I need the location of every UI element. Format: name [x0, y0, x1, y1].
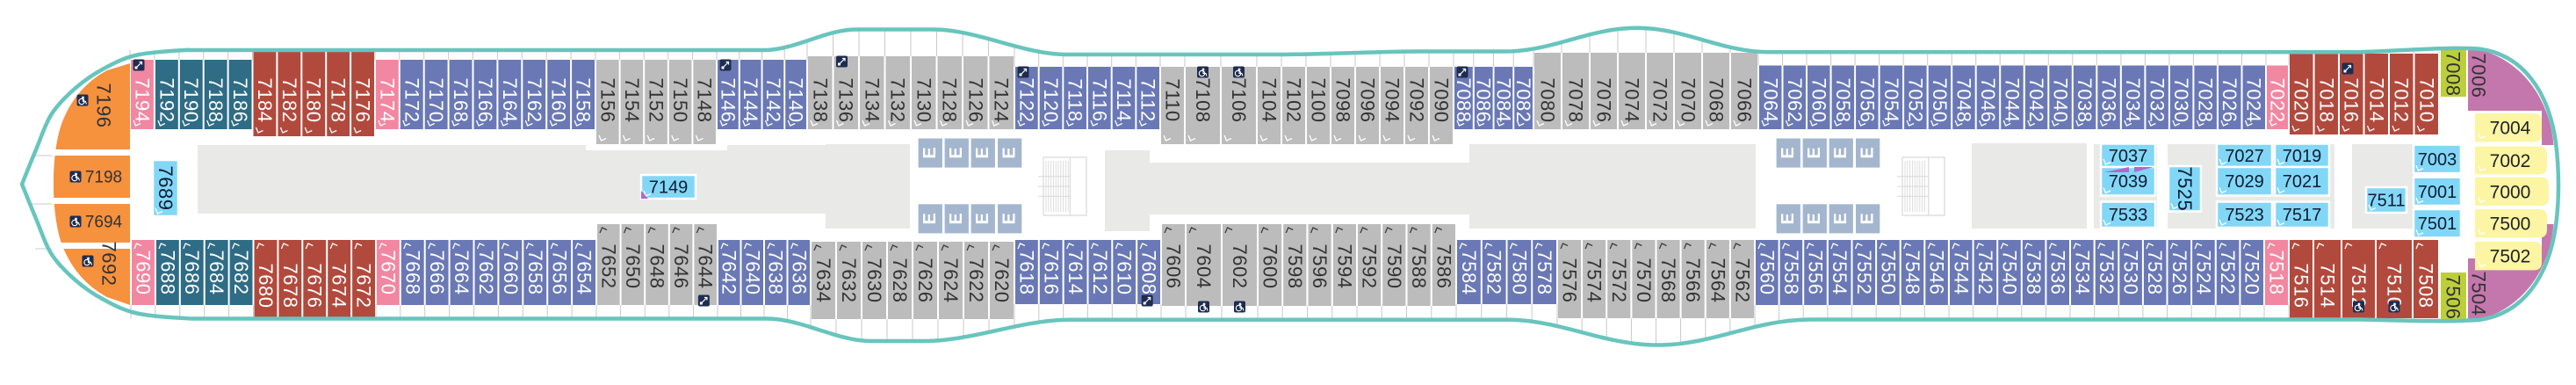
svg-text:7556: 7556 — [1805, 251, 1827, 295]
svg-text:7501: 7501 — [2418, 214, 2457, 234]
svg-text:7694: 7694 — [85, 214, 123, 232]
svg-text:7034: 7034 — [2122, 78, 2144, 123]
svg-text:7688: 7688 — [156, 251, 178, 295]
svg-text:7124: 7124 — [991, 78, 1013, 123]
svg-text:7004: 7004 — [2490, 119, 2531, 139]
svg-text:7588: 7588 — [1408, 244, 1430, 289]
svg-text:7142: 7142 — [762, 78, 784, 123]
svg-text:7500: 7500 — [2490, 214, 2531, 235]
svg-text:E: E — [1858, 147, 1878, 158]
svg-text:7146: 7146 — [717, 78, 739, 123]
svg-text:7692: 7692 — [98, 242, 120, 287]
svg-text:7630: 7630 — [863, 258, 885, 303]
svg-text:7678: 7678 — [279, 264, 301, 309]
svg-text:7530: 7530 — [2120, 251, 2142, 295]
svg-text:7578: 7578 — [1533, 251, 1555, 295]
svg-text:7078: 7078 — [1565, 78, 1587, 123]
svg-text:7690: 7690 — [132, 251, 154, 295]
svg-text:7036: 7036 — [2098, 78, 2120, 123]
svg-text:7122: 7122 — [1015, 78, 1037, 123]
svg-text:E: E — [1831, 147, 1851, 158]
svg-text:7602: 7602 — [1229, 244, 1251, 289]
svg-text:7094: 7094 — [1382, 78, 1403, 123]
svg-text:7523: 7523 — [2225, 206, 2264, 225]
svg-text:7666: 7666 — [426, 251, 448, 295]
svg-text:7192: 7192 — [155, 78, 177, 123]
svg-text:7660: 7660 — [500, 251, 522, 295]
svg-text:7194: 7194 — [131, 78, 153, 123]
svg-text:7518: 7518 — [2266, 251, 2288, 295]
svg-text:7039: 7039 — [2109, 172, 2148, 192]
svg-text:7149: 7149 — [649, 178, 689, 198]
svg-text:7046: 7046 — [1977, 78, 1999, 123]
svg-text:7066: 7066 — [1734, 78, 1756, 123]
svg-text:7044: 7044 — [2002, 78, 2024, 123]
svg-text:7608: 7608 — [1138, 251, 1160, 295]
svg-text:7628: 7628 — [889, 258, 911, 303]
svg-text:7632: 7632 — [838, 258, 860, 303]
svg-text:7068: 7068 — [1706, 78, 1728, 123]
svg-text:7592: 7592 — [1359, 244, 1381, 289]
svg-text:7140: 7140 — [785, 78, 807, 123]
svg-text:7668: 7668 — [401, 251, 423, 295]
svg-text:7517: 7517 — [2283, 206, 2322, 225]
svg-text:7116: 7116 — [1088, 78, 1110, 121]
svg-text:7030: 7030 — [2170, 78, 2192, 123]
svg-text:7560: 7560 — [1756, 251, 1778, 295]
svg-text:7132: 7132 — [887, 78, 909, 123]
svg-text:7156: 7156 — [596, 78, 618, 123]
svg-text:7552: 7552 — [1853, 251, 1875, 295]
svg-text:7680: 7680 — [255, 264, 277, 309]
svg-text:7174: 7174 — [376, 78, 398, 123]
svg-text:7090: 7090 — [1431, 78, 1453, 123]
svg-text:7672: 7672 — [353, 264, 375, 309]
svg-text:7001: 7001 — [2418, 183, 2457, 202]
svg-text:E: E — [1831, 213, 1851, 224]
svg-text:7164: 7164 — [499, 78, 521, 123]
svg-text:7012: 7012 — [2391, 78, 2413, 123]
svg-text:7572: 7572 — [1608, 258, 1630, 303]
svg-text:7136: 7136 — [835, 78, 857, 123]
svg-text:7624: 7624 — [940, 258, 962, 303]
svg-text:7120: 7120 — [1040, 78, 1062, 123]
svg-text:E: E — [1779, 147, 1798, 158]
svg-text:7614: 7614 — [1064, 251, 1086, 295]
svg-text:7620: 7620 — [991, 258, 1013, 303]
svg-text:7042: 7042 — [2025, 78, 2047, 123]
svg-text:7019: 7019 — [2283, 147, 2322, 166]
svg-text:E: E — [1805, 213, 1824, 224]
svg-text:7180: 7180 — [303, 78, 325, 123]
svg-text:7506: 7506 — [2443, 275, 2464, 320]
svg-text:7168: 7168 — [450, 78, 472, 123]
svg-text:7070: 7070 — [1678, 78, 1699, 123]
svg-text:7114: 7114 — [1113, 78, 1135, 121]
svg-text:7172: 7172 — [400, 78, 422, 123]
svg-text:7504: 7504 — [2468, 272, 2490, 316]
svg-text:7536: 7536 — [2047, 251, 2069, 295]
svg-text:7564: 7564 — [1707, 258, 1728, 303]
svg-text:7196: 7196 — [93, 84, 115, 128]
svg-text:7604: 7604 — [1193, 244, 1215, 289]
svg-text:7198: 7198 — [85, 169, 122, 187]
svg-text:7148: 7148 — [694, 78, 716, 123]
svg-text:7640: 7640 — [741, 251, 763, 295]
svg-text:7554: 7554 — [1829, 251, 1851, 295]
svg-text:7689: 7689 — [155, 166, 177, 211]
svg-text:7658: 7658 — [524, 251, 546, 295]
svg-text:7176: 7176 — [352, 78, 374, 123]
svg-text:7014: 7014 — [2365, 78, 2387, 123]
svg-text:7024: 7024 — [2243, 78, 2265, 123]
svg-text:7152: 7152 — [646, 78, 667, 123]
svg-text:7566: 7566 — [1682, 258, 1704, 303]
svg-text:7538: 7538 — [2023, 251, 2045, 295]
svg-text:7027: 7027 — [2225, 147, 2264, 166]
svg-text:7508: 7508 — [2415, 264, 2437, 309]
svg-text:7646: 7646 — [670, 244, 692, 289]
svg-text:7634: 7634 — [812, 258, 834, 303]
svg-text:7108: 7108 — [1192, 78, 1214, 123]
svg-text:7062: 7062 — [1784, 78, 1806, 123]
svg-text:7584: 7584 — [1458, 251, 1480, 295]
svg-text:7144: 7144 — [740, 78, 761, 123]
svg-text:E: E — [1858, 213, 1878, 224]
svg-text:7076: 7076 — [1593, 78, 1615, 123]
svg-text:7118: 7118 — [1064, 78, 1086, 121]
svg-text:7064: 7064 — [1759, 78, 1781, 123]
svg-text:7006: 7006 — [2468, 54, 2490, 98]
svg-text:7178: 7178 — [328, 78, 350, 123]
svg-text:7532: 7532 — [2096, 251, 2118, 295]
svg-text:7642: 7642 — [718, 251, 740, 295]
svg-text:7020: 7020 — [2291, 78, 2313, 123]
svg-text:7654: 7654 — [574, 251, 595, 295]
svg-text:7022: 7022 — [2267, 78, 2289, 123]
svg-text:7618: 7618 — [1015, 251, 1037, 295]
svg-text:7010: 7010 — [2415, 78, 2437, 123]
svg-text:7600: 7600 — [1259, 244, 1281, 289]
svg-text:7520: 7520 — [2241, 251, 2263, 295]
svg-text:7056: 7056 — [1856, 78, 1878, 123]
svg-text:7128: 7128 — [939, 78, 961, 123]
svg-text:7576: 7576 — [1559, 258, 1581, 303]
svg-text:7550: 7550 — [1877, 251, 1899, 295]
svg-text:7126: 7126 — [964, 78, 986, 123]
svg-text:7026: 7026 — [2219, 78, 2240, 123]
svg-text:E: E — [1000, 213, 1020, 224]
svg-text:7134: 7134 — [861, 78, 883, 123]
svg-text:7102: 7102 — [1283, 78, 1305, 123]
svg-text:7610: 7610 — [1114, 251, 1136, 295]
svg-text:7644: 7644 — [695, 244, 717, 289]
svg-text:7562: 7562 — [1731, 258, 1753, 303]
svg-text:7048: 7048 — [1953, 78, 1975, 123]
svg-text:7100: 7100 — [1308, 78, 1330, 123]
svg-text:E: E — [973, 147, 992, 158]
svg-text:7664: 7664 — [451, 251, 473, 295]
svg-text:7670: 7670 — [377, 251, 399, 295]
svg-text:7150: 7150 — [669, 78, 691, 123]
svg-text:7158: 7158 — [573, 78, 595, 123]
svg-text:7682: 7682 — [230, 251, 252, 295]
svg-text:7544: 7544 — [1950, 251, 1972, 295]
svg-text:7533: 7533 — [2109, 206, 2148, 225]
svg-text:7008: 7008 — [2443, 52, 2464, 97]
svg-text:7582: 7582 — [1483, 251, 1505, 295]
svg-text:7526: 7526 — [2168, 251, 2190, 295]
svg-text:E: E — [1779, 213, 1798, 224]
svg-text:E: E — [920, 213, 940, 224]
svg-text:7548: 7548 — [1901, 251, 1923, 295]
svg-text:7032: 7032 — [2147, 78, 2168, 123]
svg-text:7088: 7088 — [1453, 78, 1475, 123]
svg-text:7525: 7525 — [2174, 166, 2196, 211]
svg-text:7072: 7072 — [1649, 78, 1671, 123]
svg-text:7110: 7110 — [1162, 78, 1184, 121]
svg-text:7638: 7638 — [765, 251, 787, 295]
svg-text:7524: 7524 — [2193, 251, 2215, 295]
svg-text:7674: 7674 — [328, 264, 350, 309]
svg-text:E: E — [947, 147, 966, 158]
svg-text:7106: 7106 — [1228, 78, 1250, 123]
svg-text:7086: 7086 — [1473, 78, 1495, 123]
svg-text:7184: 7184 — [254, 78, 276, 123]
svg-text:7568: 7568 — [1657, 258, 1679, 303]
svg-text:7082: 7082 — [1512, 78, 1534, 123]
svg-text:7029: 7029 — [2225, 172, 2264, 192]
svg-text:7162: 7162 — [523, 78, 545, 123]
svg-text:E: E — [947, 213, 966, 224]
svg-text:7511: 7511 — [2367, 192, 2405, 211]
svg-text:7606: 7606 — [1163, 244, 1185, 289]
svg-text:7096: 7096 — [1357, 78, 1379, 123]
svg-text:7686: 7686 — [181, 251, 203, 295]
svg-text:7130: 7130 — [913, 78, 934, 123]
svg-text:7138: 7138 — [809, 78, 831, 123]
svg-text:7054: 7054 — [1880, 78, 1902, 123]
svg-text:7598: 7598 — [1284, 244, 1306, 289]
svg-text:7166: 7166 — [474, 78, 496, 123]
svg-text:7084: 7084 — [1492, 78, 1514, 123]
svg-text:E: E — [1805, 147, 1824, 158]
svg-text:7534: 7534 — [2071, 251, 2093, 295]
svg-text:7522: 7522 — [2217, 251, 2239, 295]
svg-text:7580: 7580 — [1508, 251, 1530, 295]
svg-text:7514: 7514 — [2317, 264, 2339, 309]
svg-text:7574: 7574 — [1584, 258, 1605, 303]
svg-text:7170: 7170 — [425, 78, 447, 123]
svg-text:7516: 7516 — [2291, 264, 2313, 309]
svg-text:7586: 7586 — [1432, 244, 1454, 289]
svg-text:7558: 7558 — [1780, 251, 1802, 295]
svg-text:7546: 7546 — [1926, 251, 1948, 295]
svg-text:7038: 7038 — [2074, 78, 2096, 123]
svg-text:7074: 7074 — [1621, 78, 1643, 123]
svg-text:7190: 7190 — [180, 78, 202, 123]
svg-text:7018: 7018 — [2315, 78, 2337, 123]
svg-text:7188: 7188 — [205, 78, 227, 123]
svg-text:7154: 7154 — [621, 78, 643, 123]
svg-text:7037: 7037 — [2109, 147, 2148, 166]
svg-text:7182: 7182 — [278, 78, 300, 123]
svg-text:E: E — [1000, 147, 1020, 158]
svg-text:7028: 7028 — [2195, 78, 2217, 123]
svg-text:7590: 7590 — [1383, 244, 1405, 289]
svg-text:7616: 7616 — [1040, 251, 1062, 295]
svg-text:7002: 7002 — [2490, 151, 2531, 171]
svg-text:7540: 7540 — [1999, 251, 2021, 295]
svg-text:7626: 7626 — [914, 258, 936, 303]
svg-text:7662: 7662 — [475, 251, 497, 295]
svg-text:7080: 7080 — [1537, 78, 1559, 123]
svg-text:E: E — [973, 213, 992, 224]
svg-text:E: E — [920, 147, 940, 158]
svg-text:7648: 7648 — [646, 244, 668, 289]
svg-text:7594: 7594 — [1333, 244, 1355, 289]
svg-text:7060: 7060 — [1808, 78, 1829, 123]
svg-text:7000: 7000 — [2490, 182, 2531, 202]
svg-text:7684: 7684 — [206, 251, 227, 295]
svg-text:7050: 7050 — [1929, 78, 1951, 123]
svg-text:7058: 7058 — [1832, 78, 1854, 123]
svg-text:7092: 7092 — [1406, 78, 1428, 123]
svg-text:7656: 7656 — [549, 251, 571, 295]
svg-text:7612: 7612 — [1089, 251, 1111, 295]
svg-text:7003: 7003 — [2418, 150, 2457, 170]
svg-text:7502: 7502 — [2490, 247, 2531, 267]
svg-text:7098: 7098 — [1332, 78, 1354, 123]
svg-text:7016: 7016 — [2341, 78, 2363, 123]
svg-text:7186: 7186 — [229, 78, 251, 123]
svg-text:7021: 7021 — [2283, 172, 2322, 192]
svg-text:7160: 7160 — [548, 78, 570, 123]
svg-text:7052: 7052 — [1904, 78, 1926, 123]
svg-text:7650: 7650 — [622, 244, 644, 289]
svg-text:7636: 7636 — [788, 251, 810, 295]
svg-text:7528: 7528 — [2144, 251, 2166, 295]
svg-text:7104: 7104 — [1259, 78, 1281, 123]
svg-text:7622: 7622 — [965, 258, 987, 303]
svg-text:7040: 7040 — [2050, 78, 2072, 123]
svg-text:7652: 7652 — [597, 244, 619, 289]
svg-text:7676: 7676 — [304, 264, 326, 309]
svg-text:7112: 7112 — [1137, 78, 1159, 121]
svg-text:7596: 7596 — [1309, 244, 1331, 289]
svg-text:7542: 7542 — [1974, 251, 1996, 295]
svg-text:7570: 7570 — [1633, 258, 1655, 303]
